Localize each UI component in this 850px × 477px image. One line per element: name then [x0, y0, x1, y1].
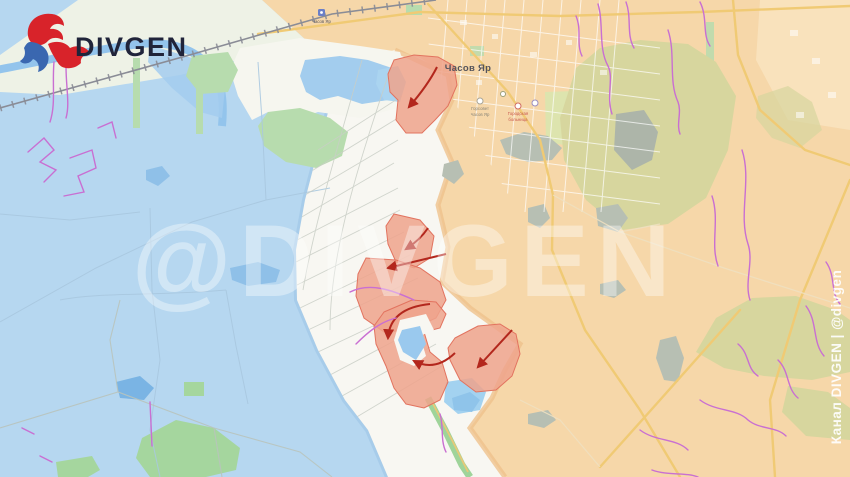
watermark-side: Канал DIVGEN | @divgen: [829, 270, 844, 445]
station-label: Часов Яр: [312, 19, 331, 24]
hospital-icon: [515, 103, 521, 109]
map-screenshot: Часов Яр Часов Яр Горсовет Часов Яр Горо…: [0, 0, 850, 477]
gorsovet-label-1: Горсовет: [471, 106, 489, 111]
logo-text: DIVGEN: [75, 32, 188, 62]
watermark-center: @DIVGEN: [132, 204, 679, 318]
gorsovet-label-2: Часов Яр: [471, 112, 490, 117]
hospital-label-1: Городская: [508, 111, 529, 116]
town-label: Часов Яр: [445, 63, 492, 74]
park-poi-icon: [501, 92, 506, 97]
war-map-canvas: Часов Яр Часов Яр Горсовет Часов Яр Горо…: [0, 0, 850, 477]
gorsovet-icon: [477, 98, 483, 104]
hospital-label-2: больница: [508, 117, 528, 122]
poi-icon: [532, 100, 538, 106]
